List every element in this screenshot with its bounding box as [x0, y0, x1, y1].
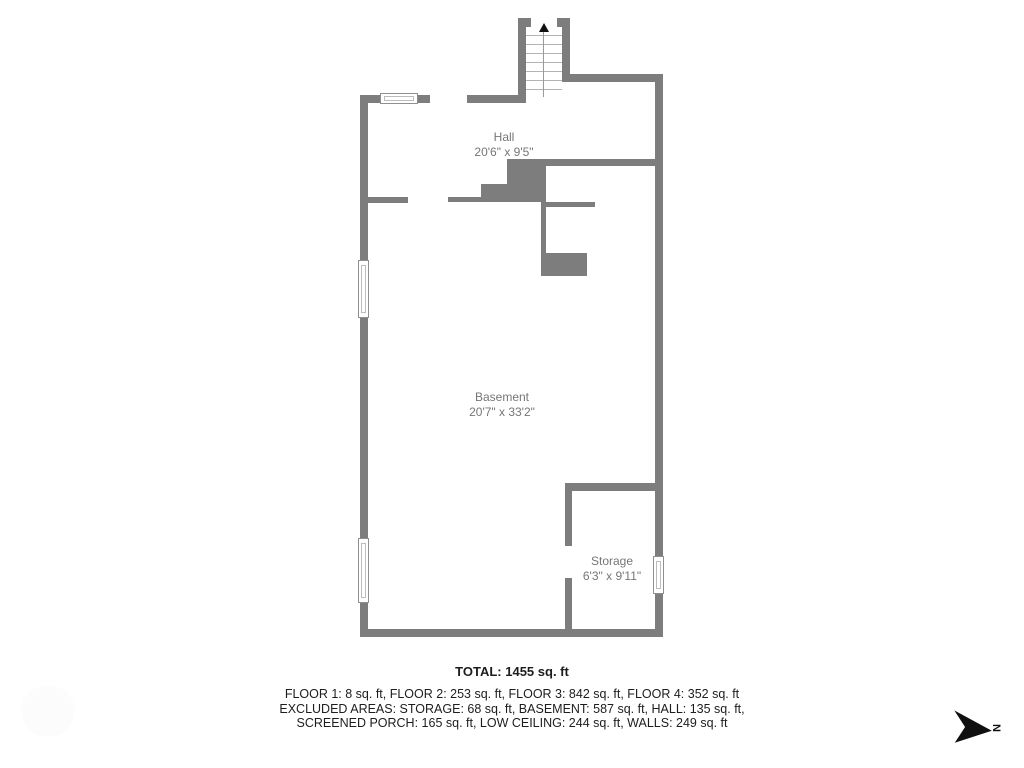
summary-details: FLOOR 1: 8 sq. ft, FLOOR 2: 253 sq. ft, …: [0, 687, 1024, 731]
room-name: Storage: [532, 554, 692, 569]
window-left-wall-upper: [358, 260, 369, 318]
wall-exterior-right: [655, 74, 663, 637]
window-top-wall: [380, 93, 418, 104]
compass: N: [948, 706, 1012, 758]
north-label: N: [990, 724, 1002, 732]
wall-storage-top: [565, 483, 663, 491]
room-label-hall: Hall 20'6" x 9'5": [424, 130, 584, 160]
room-dimensions: 6'3" x 9'11": [532, 569, 692, 584]
window-left-wall-lower: [358, 538, 369, 603]
room-dimensions: 20'6" x 9'5": [424, 145, 584, 160]
room-label-storage: Storage 6'3" x 9'11": [532, 554, 692, 584]
summary-total: TOTAL: 1455 sq. ft: [0, 664, 1024, 679]
wall-stairwell-right: [562, 18, 570, 82]
wall-stairwell-left: [518, 18, 526, 100]
wall-interior-left-segment: [360, 197, 408, 203]
stair-tread: [526, 35, 562, 36]
watermark-blob: [22, 686, 74, 736]
wall-chimney-step: [481, 184, 507, 202]
floor-plan-page: Hall 20'6" x 9'5" Basement 20'7" x 33'2"…: [0, 0, 1024, 768]
summary-excluded-line2: SCREENED PORCH: 165 sq. ft, LOW CEILING:…: [0, 716, 1024, 731]
room-label-basement: Basement 20'7" x 33'2": [422, 390, 582, 420]
window-pane: [361, 265, 366, 313]
window-pane: [361, 543, 366, 598]
stair-tread: [526, 62, 562, 63]
wall-storage-left-upper: [565, 483, 572, 546]
wall-interior-thin: [448, 197, 481, 202]
stair-direction-line: [543, 30, 544, 97]
wall-chimney-block: [507, 159, 546, 202]
window-pane: [384, 96, 414, 101]
room-name: Basement: [422, 390, 582, 405]
room-dimensions: 20'7" x 33'2": [422, 405, 582, 420]
staircase: [526, 27, 562, 97]
summary-floors-line: FLOOR 1: 8 sq. ft, FLOOR 2: 253 sq. ft, …: [0, 687, 1024, 702]
wall-storage-left-lower: [565, 578, 572, 637]
stair-tread: [526, 44, 562, 45]
stairs-up-arrow-icon: [539, 23, 549, 32]
wall-top-right: [562, 74, 663, 82]
wall-interior-block: [541, 253, 587, 276]
stair-tread: [526, 89, 562, 90]
summary-excluded-line1: EXCLUDED AREAS: STORAGE: 68 sq. ft, BASE…: [0, 702, 1024, 717]
wall-interior-horizontal: [546, 202, 595, 207]
wall-exterior-bottom: [360, 629, 663, 637]
stair-tread: [526, 53, 562, 54]
wall-interior-vertical: [541, 202, 546, 253]
room-name: Hall: [424, 130, 584, 145]
stair-tread: [526, 80, 562, 81]
stair-tread: [526, 71, 562, 72]
